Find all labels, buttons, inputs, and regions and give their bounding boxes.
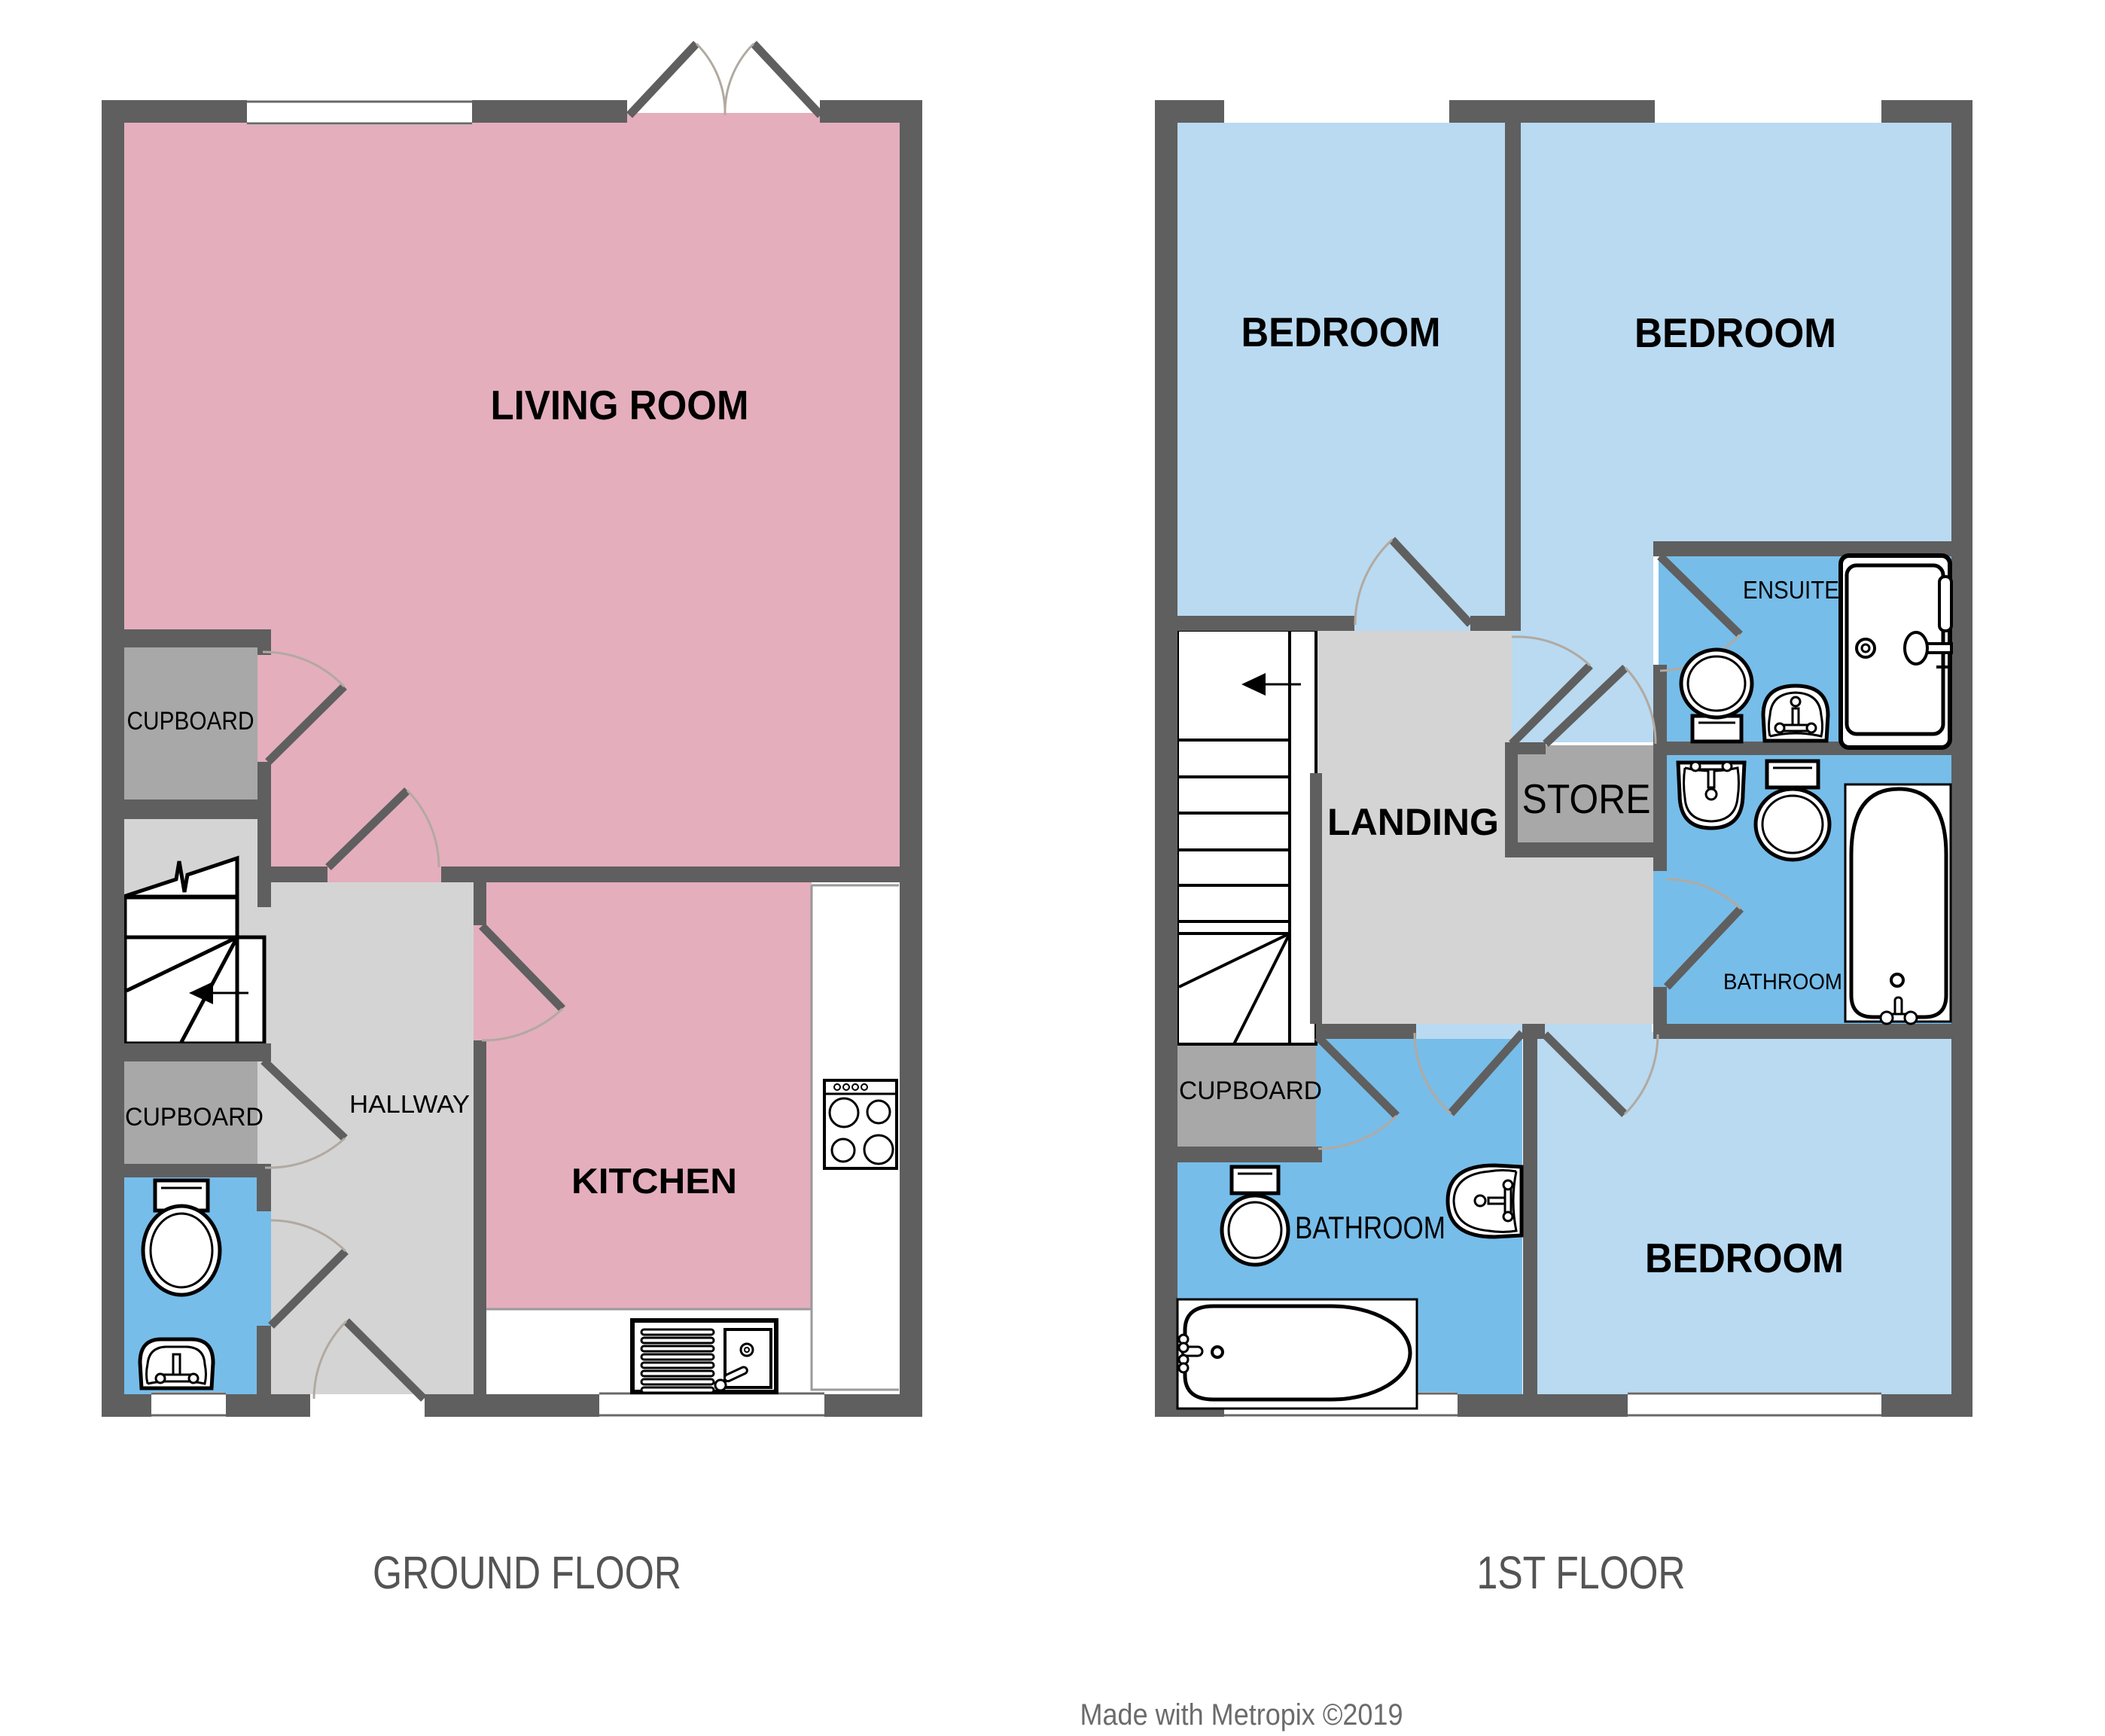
svg-text:KITCHEN: KITCHEN xyxy=(571,1161,737,1201)
svg-text:ENSUITE: ENSUITE xyxy=(1743,576,1839,604)
svg-text:BEDROOM: BEDROOM xyxy=(1634,309,1836,356)
svg-text:1ST FLOOR: 1ST FLOOR xyxy=(1477,1547,1686,1598)
svg-text:HALLWAY: HALLWAY xyxy=(349,1090,470,1118)
svg-text:Made with Metropix ©2019: Made with Metropix ©2019 xyxy=(1080,1698,1403,1731)
svg-text:BATHROOM: BATHROOM xyxy=(1295,1210,1445,1245)
svg-text:CUPBOARD: CUPBOARD xyxy=(127,707,254,736)
svg-text:LANDING: LANDING xyxy=(1327,801,1499,843)
svg-text:GROUND FLOOR: GROUND FLOOR xyxy=(373,1547,681,1598)
svg-text:LIVING ROOM: LIVING ROOM xyxy=(491,382,749,428)
svg-text:CUPBOARD: CUPBOARD xyxy=(125,1103,264,1131)
svg-text:CUPBOARD: CUPBOARD xyxy=(1179,1077,1322,1105)
svg-text:BATHROOM: BATHROOM xyxy=(1723,970,1842,994)
svg-text:STORE: STORE xyxy=(1522,775,1651,822)
svg-text:BEDROOM: BEDROOM xyxy=(1241,309,1441,355)
svg-text:BEDROOM: BEDROOM xyxy=(1645,1235,1844,1281)
